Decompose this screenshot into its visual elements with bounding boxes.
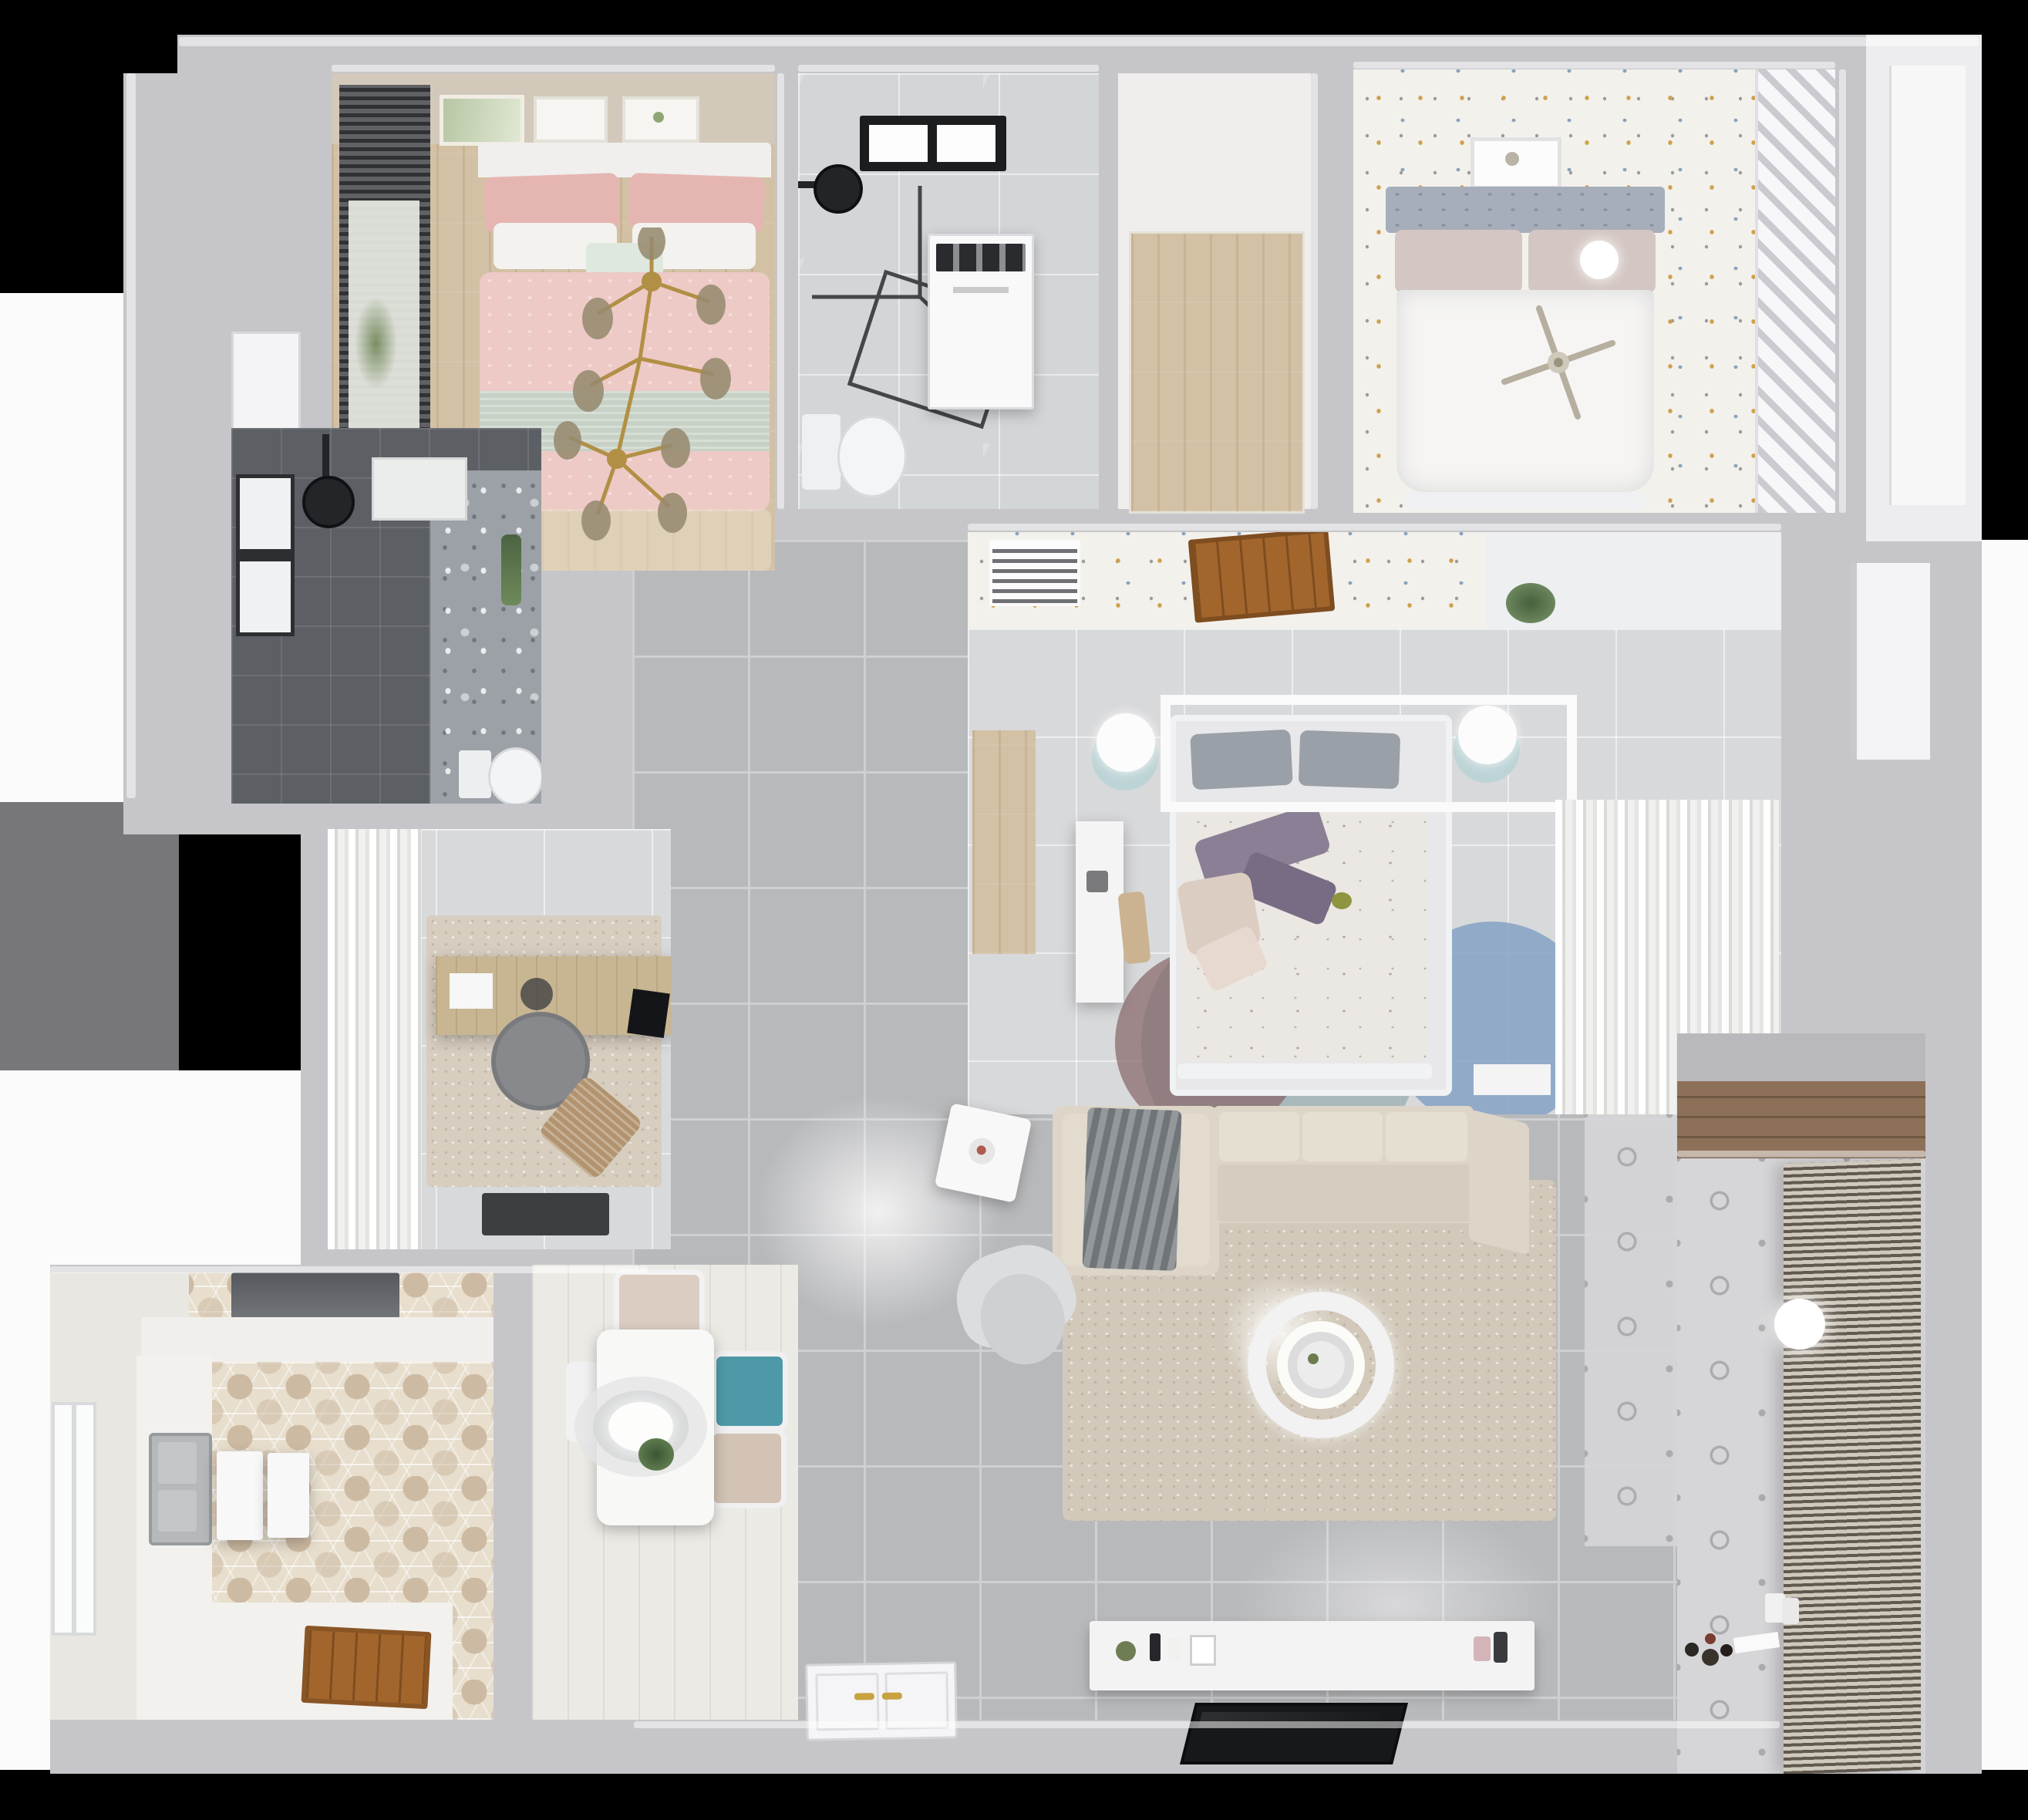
toilet-tank [459,750,491,798]
washer-controls [936,244,1026,271]
kitchen-tray-2 [268,1453,309,1538]
master-desk [1076,821,1123,1003]
wall-highlight-bedroom-pink [332,65,775,72]
console-frame-small [1190,1635,1216,1666]
window-glow [349,201,419,432]
guest-headboard [1386,187,1665,233]
door-right-open [1851,563,1930,760]
sofa-blanket-gray [1082,1107,1181,1271]
study-curtain-wall [328,829,422,1249]
wall-highlight-bedroom-guest [1353,62,1835,69]
bathroom-dark-window [236,474,295,636]
window-plant-silhouette [355,297,397,389]
entry-door-handle-1 [854,1693,874,1700]
toilet-top-bath [802,406,902,497]
living-sofa [1053,1104,1529,1279]
living-side-table [935,1103,1033,1203]
outside-white-left-lower [0,1070,302,1272]
floorplan-stage [0,0,2028,1820]
console-jar-dark [1494,1632,1508,1663]
room-bedroom-master [968,629,1781,1114]
master-desk-item [1086,871,1108,892]
console-jar-pink [1474,1636,1491,1661]
console-green-disc [1116,1641,1136,1661]
balcony-ceiling-light [1774,1299,1825,1350]
room-bathroom-dark [231,428,541,804]
wall-cabinet-white [372,457,467,521]
console-bottle [1150,1633,1161,1661]
balcony-toys [1685,1621,1808,1706]
wall-highlight-bottom [634,1721,1780,1728]
kitchen-wood-door [301,1626,431,1709]
sink-basin-bottom [158,1490,197,1532]
skylight-pane-left [869,125,928,162]
toy-car-body [1705,1633,1716,1644]
tv-console [1090,1621,1534,1690]
light-sprig [1308,1353,1319,1364]
study-door-mat [482,1193,609,1235]
niche-wood-shelf [1677,1081,1925,1158]
sink-basin-top [158,1442,197,1484]
wall-art-botanical [622,96,699,143]
sofa-back-cushion-3 [1386,1112,1467,1161]
guest-bed-foot [1404,492,1646,511]
niche-ledge [1677,1033,1925,1081]
guest-sphere-lamp [1580,241,1619,279]
wall-highlight-left [126,73,136,798]
corridor-plant [1506,583,1555,623]
outside-gray-left [0,802,179,1072]
wall-highlight-divider-3 [1839,69,1846,513]
sofa-arm-right [1469,1109,1529,1255]
corridor-white-pass [1486,532,1781,629]
toy-wheel-2 [1702,1649,1719,1666]
desk-paper [450,973,493,1009]
master-bench-white [1474,1064,1551,1095]
study-monitor [627,989,670,1038]
bed-pink-headboard [478,143,771,177]
ac-vent-grille [989,540,1080,606]
master-duvet-green-accent [1332,892,1352,909]
dining-plant [638,1438,674,1471]
corridor-wood-door [1188,532,1336,623]
room-bedroom-guest [1353,69,1835,513]
chandelier-branch [524,228,775,567]
toilet-top-tank [802,414,841,490]
toilet-top-bowl [837,416,907,497]
shower-head-dark [302,476,355,528]
outside-white-right [1982,540,2028,1770]
kitchen-sink [149,1433,212,1545]
lamp-left-shade [1097,713,1155,772]
toy-paper [1733,1632,1780,1653]
shower-rod-dark [322,434,329,479]
room-bathroom-top [798,73,1099,509]
wall-art-leaf [440,95,524,146]
console-candle [1168,1638,1181,1661]
room-study [328,829,671,1249]
kitchen-tray-1 [217,1451,263,1540]
washing-machine [928,234,1034,410]
guest-art-sketch [1505,152,1519,166]
nightstand-lamp-left [1092,713,1158,790]
room-closet-wood [1118,73,1311,509]
toy-wheel-1 [1685,1643,1699,1657]
living-ceiling-light [1248,1292,1398,1442]
outside-white-left [0,293,125,806]
sofa-back-cushion-2 [1302,1112,1383,1161]
wall-art-text [534,96,608,143]
wall-highlight-corridor [968,524,1781,531]
guest-ceiling-fan [1497,301,1620,424]
wall-highlight-kitchen [50,1266,648,1273]
toilet-bowl [488,747,541,804]
guest-slatted-shelves [1755,69,1835,513]
toy-cup-2 [1782,1598,1799,1624]
guest-wall-art [1470,137,1561,190]
kitchen-window [52,1402,96,1636]
light-core [1297,1341,1345,1389]
master-bed-foot [1177,1063,1432,1079]
tv-panel [1180,1703,1408,1764]
closet-wood-floor [1129,231,1305,514]
corridor [968,532,1781,629]
wall-highlight-balcony [1677,1151,1925,1158]
entry-door-handle-2 [882,1693,902,1700]
door-top-right [1889,66,1966,505]
botanical-sprig [653,112,664,123]
wall-band-top-right [1866,35,1982,541]
plant-bathroom [501,534,521,605]
dining-chair-teal [711,1351,788,1431]
toy-wheel-3 [1720,1644,1733,1657]
toilet-dark-bath [459,747,539,801]
wall-highlight-top [179,37,1979,46]
desk-plate [520,978,553,1010]
wall-highlight-bathroom-top [798,65,1099,72]
master-closet-nook-floor [972,730,1036,954]
guest-pillow-left [1395,230,1522,293]
dining-chair-top [614,1269,705,1339]
sofa-back-cushion-1 [1219,1112,1299,1161]
dining-chair-bottom [708,1428,787,1508]
balcony-threshold-strip [1585,1114,1677,1546]
room-dining [532,1265,798,1720]
skylight-pane-right [937,125,995,162]
outside-white-bottomleft [0,1272,51,1770]
washer-label [953,287,1009,293]
skylight [860,116,1006,171]
room-balcony [1677,1158,1925,1774]
wall-highlight-divider-1 [777,73,784,509]
master-canopy-frame [1161,695,1577,812]
room-kitchen [50,1272,494,1720]
wall-highlight-divider-2 [1311,73,1318,509]
sofa-seat [1218,1164,1472,1222]
entry-door [805,1661,958,1741]
